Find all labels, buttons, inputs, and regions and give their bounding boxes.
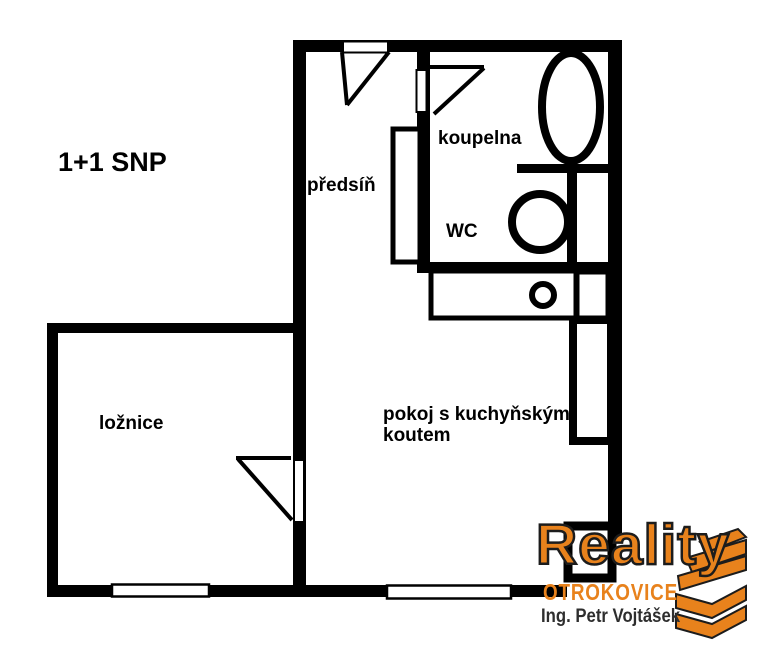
wall-bedroom-left <box>47 323 58 597</box>
bedroom-door-swing <box>238 459 292 520</box>
room-label-wc: WC <box>446 221 478 242</box>
floorplan-canvas: 1+1 SNP předsíň koupelna WC ložnice poko… <box>0 0 761 645</box>
corner-column <box>568 526 612 578</box>
plan-title: 1+1 SNP <box>58 147 167 178</box>
bathtub-icon <box>542 53 600 161</box>
entrance-door-leaf <box>343 42 388 53</box>
bathroom-door-leaf <box>417 70 427 112</box>
closet-rectangle <box>393 129 420 262</box>
brand-ribbon-icon <box>676 529 746 638</box>
bedroom-door-leaf <box>294 460 304 522</box>
living-room-window <box>387 586 511 599</box>
sink-icon <box>532 284 554 306</box>
entrance-door-swing <box>347 52 389 105</box>
bathroom-door-swing <box>434 68 484 114</box>
room-label-pokoj: pokoj s kuchyňským koutem <box>383 404 583 446</box>
toilet-icon <box>512 194 568 250</box>
room-label-loznice: ložnice <box>99 413 163 434</box>
room-label-predsin: předsíň <box>307 175 376 196</box>
utility-shaft <box>577 272 608 318</box>
bedroom-window <box>112 585 209 597</box>
entrance-door-swing <box>342 52 347 105</box>
wall-bedroom-top <box>47 323 305 333</box>
floorplan-drawing <box>0 0 761 645</box>
room-label-koupelna: koupelna <box>438 128 521 149</box>
